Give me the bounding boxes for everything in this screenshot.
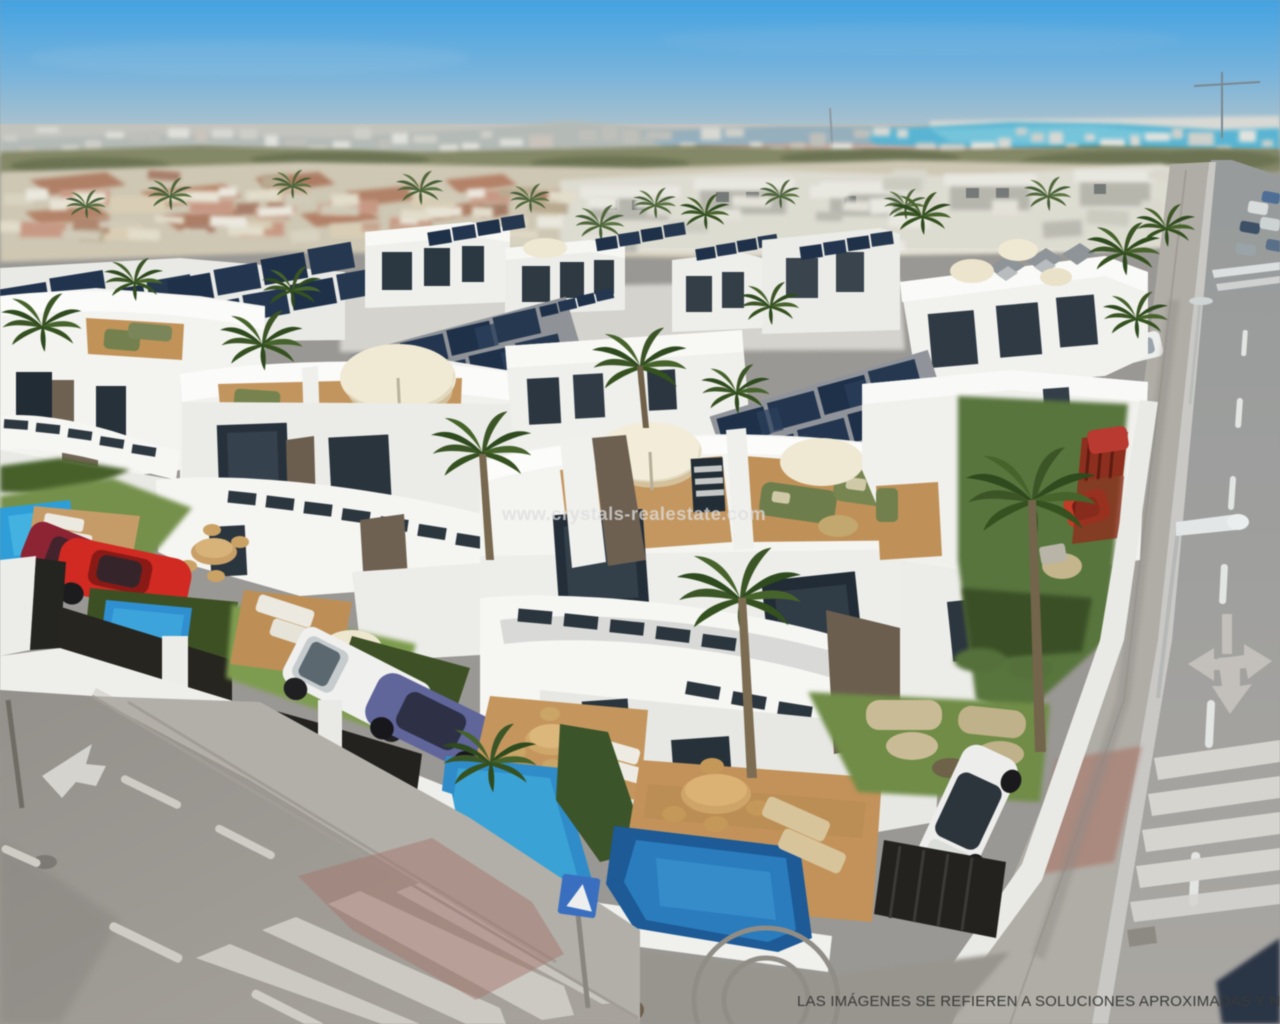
svg-text:www.crystals-realestate.com: www.crystals-realestate.com (501, 503, 766, 524)
svg-text:LAS IMÁGENES SE REFIEREN A SOL: LAS IMÁGENES SE REFIEREN A SOLUCIONES AP… (797, 993, 1280, 1010)
